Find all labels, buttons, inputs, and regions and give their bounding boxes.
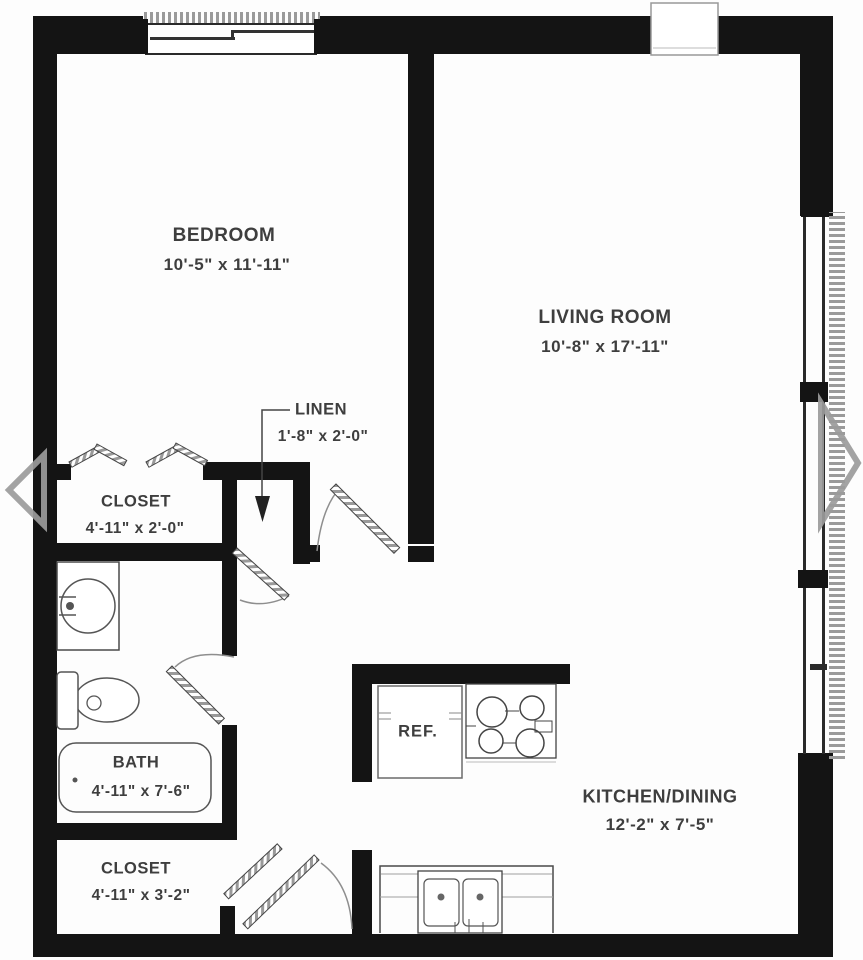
room-dims-bedroom: 10'-5" x 11'-11"	[164, 255, 291, 275]
room-label-closet-upper: CLOSET	[101, 493, 171, 512]
window-frame	[803, 217, 806, 382]
window-mullion	[810, 664, 827, 670]
floor-plan-drawing	[0, 0, 863, 960]
room-label-living-room: LIVING ROOM	[538, 307, 671, 329]
wall-segment	[222, 560, 237, 656]
wall-segment	[203, 462, 310, 480]
leader-line	[262, 410, 290, 497]
window-pane	[150, 37, 235, 40]
wall-segment	[293, 545, 320, 562]
floor-plan: BEDROOM 10'-5" x 11'-11" LIVING ROOM 10'…	[0, 0, 863, 960]
toilet-bowl	[75, 678, 139, 722]
room-label-closet-lower: CLOSET	[101, 860, 171, 879]
wall-segment	[800, 382, 828, 402]
room-label-bedroom: BEDROOM	[173, 225, 276, 247]
kitchen-double-sink-icon	[418, 871, 502, 933]
wall-segment	[33, 823, 237, 840]
room-dims-linen: 1'-8" x 2'-0"	[278, 428, 369, 446]
bifold-panel	[173, 443, 207, 466]
door-swing-arc	[321, 863, 352, 929]
toilet-tank	[57, 672, 78, 729]
refrigerator-label: REF.	[398, 723, 438, 742]
wall-segment	[320, 16, 833, 54]
room-label-kitchen-dining: KITCHEN/DINING	[583, 787, 738, 808]
window-pane	[231, 30, 315, 33]
room-dims-bath: 4'-11" x 7'-6"	[92, 783, 191, 801]
wall-segment	[408, 546, 434, 562]
window-frame	[803, 402, 806, 570]
window-screen-hatch	[142, 12, 320, 24]
wall-segment	[800, 16, 833, 216]
door-swing-arc	[317, 488, 340, 551]
range-burners-icon	[466, 684, 556, 762]
chase-box	[651, 3, 718, 55]
room-dims-living-room: 10'-8" x 17'-11"	[541, 337, 669, 357]
window-jamb	[142, 19, 148, 54]
closet-door-icon	[224, 844, 282, 899]
wall-segment	[220, 906, 235, 938]
wall-segment	[53, 464, 71, 480]
bathroom-sink-icon	[57, 562, 119, 650]
faucet	[438, 894, 445, 901]
wall-segment	[798, 753, 833, 957]
wall-segment	[352, 850, 372, 940]
door-swing-arc	[175, 655, 234, 667]
room-label-bath: BATH	[113, 754, 160, 773]
room-dims-kitchen-dining: 12'-2" x 7'-5"	[606, 815, 715, 835]
tub-drain	[73, 778, 78, 783]
wall-segment	[33, 934, 833, 957]
bifold-closet-doors-icon	[69, 443, 207, 467]
faucet	[66, 602, 74, 610]
bedroom-door-icon	[330, 484, 399, 553]
wall-segment	[798, 570, 828, 588]
sink-unit	[418, 871, 502, 933]
room-dims-closet-upper: 4'-11" x 2'-0"	[86, 520, 185, 538]
window-frame	[822, 217, 825, 382]
wall-chase	[651, 3, 718, 55]
bifold-panel	[94, 444, 127, 466]
window-meeting-rail	[231, 30, 234, 40]
bath-door-icon	[166, 666, 224, 724]
window-frame	[822, 588, 825, 754]
linen-door-icon	[232, 548, 289, 600]
wall-segment	[408, 54, 434, 544]
wall-segment	[352, 664, 570, 684]
window-jamb	[801, 212, 829, 217]
faucet	[477, 894, 484, 901]
bedroom-window-icon	[142, 12, 320, 54]
window-frame	[803, 588, 806, 754]
wall-segment	[352, 684, 372, 782]
room-label-linen: LINEN	[295, 401, 347, 420]
wall-segment	[222, 725, 237, 827]
window-jamb	[314, 19, 320, 54]
toilet-icon	[57, 672, 139, 729]
arrowhead	[255, 496, 270, 522]
room-dims-closet-lower: 4'-11" x 3'-2"	[92, 887, 191, 905]
wall-segment	[33, 543, 237, 561]
